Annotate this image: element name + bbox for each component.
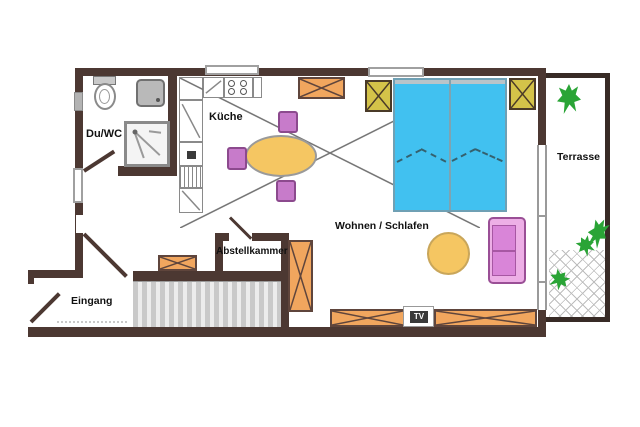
wall-right-upper bbox=[538, 68, 546, 145]
door-opening-hall bbox=[76, 215, 83, 233]
wall-storage-left bbox=[215, 233, 223, 281]
watermark-smudge bbox=[57, 321, 127, 323]
wall-hall-left bbox=[28, 270, 83, 278]
floor-plan: TV Du/WC Küche Wohnen / Schlafen Abstell… bbox=[0, 0, 640, 427]
window-left-bathroom bbox=[74, 92, 83, 111]
sofa-icon bbox=[488, 217, 526, 284]
kitchen-cabinet-icon bbox=[179, 100, 203, 142]
plant-icon bbox=[557, 84, 581, 114]
wall-stairs-top bbox=[133, 271, 288, 281]
bathroom-door bbox=[83, 150, 115, 173]
chair-bottom-icon bbox=[276, 180, 296, 202]
window-left-hall bbox=[73, 168, 83, 203]
entrance-door bbox=[30, 292, 61, 323]
nightstand-right-icon bbox=[509, 78, 536, 110]
room-label-living: Wohnen / Schlafen bbox=[335, 220, 429, 232]
nightstand-left-icon bbox=[365, 80, 392, 112]
bench-icon bbox=[158, 255, 197, 271]
room-label-entrance: Eingang bbox=[71, 295, 112, 307]
terrace-wall-right bbox=[605, 73, 610, 322]
kitchen-counter-icon bbox=[203, 77, 224, 98]
tv-sideboard-left-icon bbox=[330, 309, 405, 327]
terrace-wall-top bbox=[546, 73, 610, 78]
dining-table-icon bbox=[245, 135, 317, 177]
stove-icon bbox=[224, 77, 253, 98]
room-label-kitchen: Küche bbox=[209, 111, 243, 123]
shower-icon bbox=[124, 121, 170, 167]
wall-hall-endcap bbox=[28, 270, 34, 284]
dishwasher-icon bbox=[179, 166, 203, 188]
washbasin-icon bbox=[136, 79, 165, 107]
room-label-terrace: Terrasse bbox=[557, 151, 600, 163]
wardrobe-icon bbox=[288, 240, 313, 312]
tv-icon: TV bbox=[403, 306, 434, 327]
kitchen-corner-cabinet-icon bbox=[179, 77, 203, 100]
wall-bathroom-bottom bbox=[118, 166, 177, 176]
wall-bottom bbox=[28, 327, 545, 337]
chair-left-icon bbox=[227, 147, 247, 170]
oven-icon bbox=[179, 142, 203, 166]
round-rug-icon bbox=[427, 232, 470, 275]
chair-top-icon bbox=[278, 111, 298, 133]
tv-label: TV bbox=[410, 311, 428, 323]
room-label-storage: Abstellkammer bbox=[216, 246, 288, 257]
terrace-sliding-door bbox=[537, 145, 547, 310]
window-top-bedroom bbox=[368, 67, 424, 77]
window-top-kitchen bbox=[205, 65, 259, 75]
dresser-icon bbox=[298, 77, 345, 99]
wall-storage-top-right bbox=[252, 233, 289, 241]
toilet-icon bbox=[94, 83, 116, 110]
wall-top bbox=[75, 68, 545, 76]
kitchen-cabinet-lower-icon bbox=[179, 188, 203, 213]
tv-sideboard-right-icon bbox=[434, 309, 537, 327]
room-label-bathroom: Du/WC bbox=[86, 128, 122, 140]
hall-door bbox=[83, 233, 128, 278]
terrace-wall-bottom bbox=[546, 317, 610, 322]
kitchen-end-cabinet-icon bbox=[253, 77, 262, 98]
stairs bbox=[133, 281, 281, 327]
double-bed-icon bbox=[393, 78, 507, 212]
